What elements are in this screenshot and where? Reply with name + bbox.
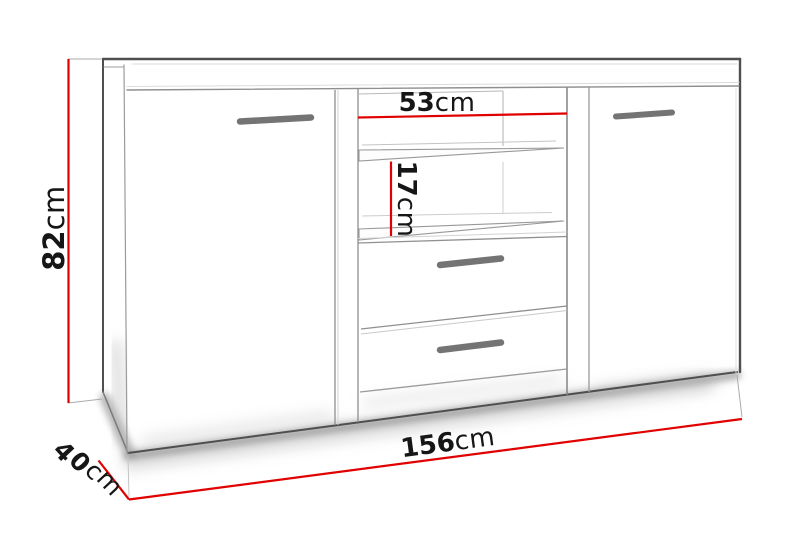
right-door-handle — [616, 113, 672, 117]
width-extension-right — [737, 375, 742, 417]
height-extension-bottom — [68, 399, 102, 403]
door-dividers — [335, 88, 736, 426]
width-unit: cm — [453, 422, 497, 457]
shelf-1-back-edge — [362, 141, 556, 145]
shelf-spacing-dimension-label: 17cm — [391, 161, 421, 238]
furniture-dimension-diagram: 82cm 53cm 17cm 156cm 40cm — [0, 0, 800, 533]
drawer-2-handle — [440, 343, 501, 351]
niche-width-unit: cm — [435, 88, 476, 118]
height-value: 82 — [37, 230, 71, 270]
niche-width-dimension-label: 53cm — [399, 88, 476, 118]
shelf-spacing-unit: cm — [391, 197, 421, 238]
sideboard-drawing: 82cm 53cm 17cm 156cm 40cm — [0, 0, 800, 533]
height-dimension-label: 82cm — [37, 185, 71, 271]
shelf-1 — [359, 148, 564, 161]
drawer-separator-top — [361, 306, 567, 329]
drawer-1-handle — [440, 259, 501, 266]
drawers — [358, 232, 567, 392]
height-unit: cm — [37, 185, 71, 230]
drawer-separator-bottom — [361, 311, 567, 335]
niche-width-value: 53 — [399, 88, 435, 118]
left-door-handle — [240, 118, 311, 122]
shelf-spacing-value: 17 — [391, 161, 421, 197]
